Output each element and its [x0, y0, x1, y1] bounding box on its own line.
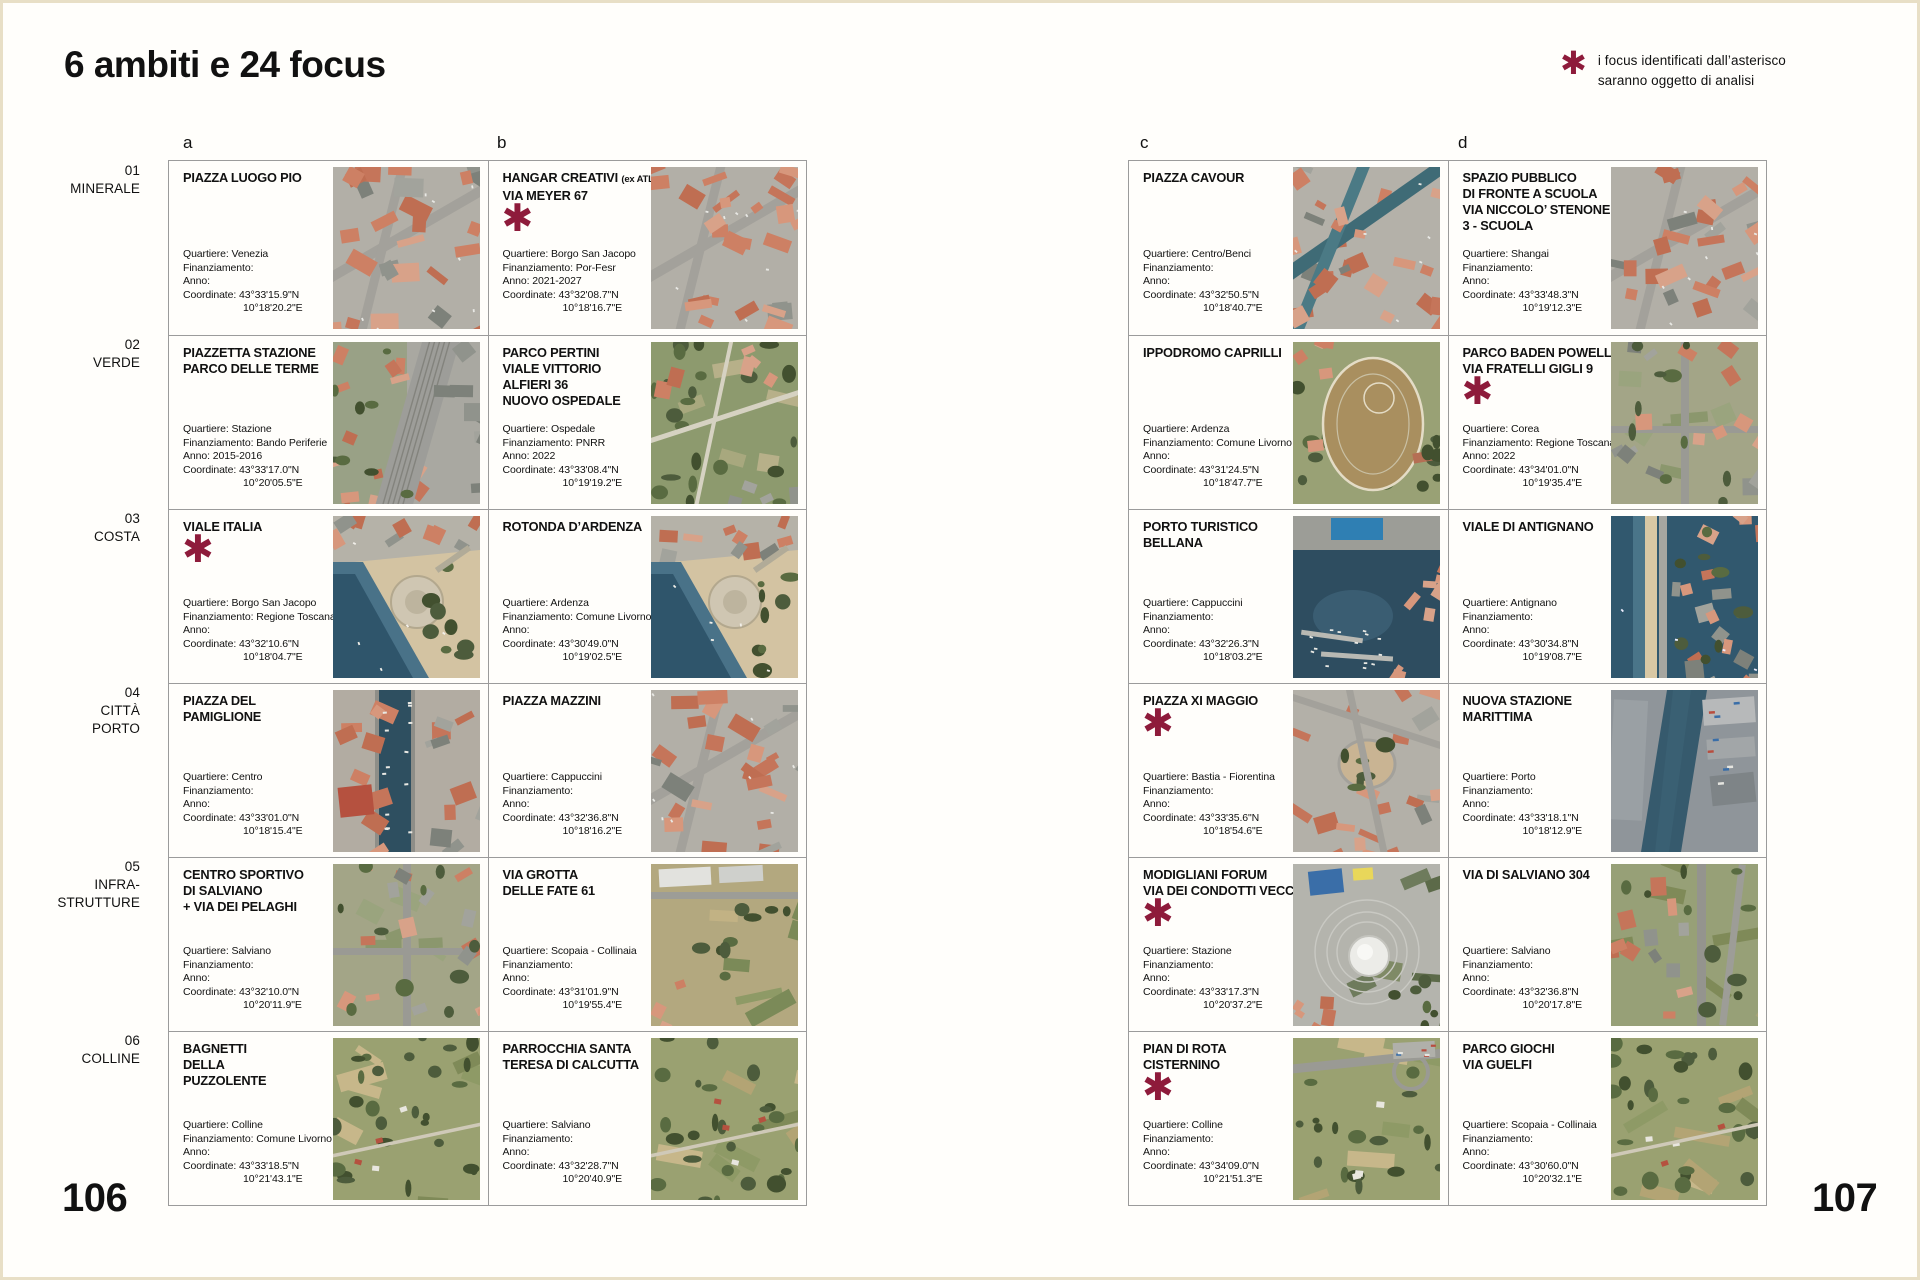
focus-finanziamento: Finanziamento: [1463, 959, 1583, 973]
focus-quartiere: Quartiere: Centro/Benci [1143, 248, 1263, 262]
focus-details: Quartiere: Centro/BenciFinanziamento: An… [1143, 248, 1263, 316]
focus-quartiere: Quartiere: Centro [183, 771, 303, 785]
page-title: 6 ambiti e 24 focus [64, 44, 386, 86]
focus-card-5c: MODIGLIANI FORUMVIA DEI CONDOTTI VECCHI✱… [1129, 857, 1448, 1031]
focus-coordinate-n: Coordinate: 43°33'17.3"N [1143, 986, 1263, 1000]
focus-anno: Anno: [183, 972, 302, 986]
focus-quartiere: Quartiere: Antignano [1463, 597, 1583, 611]
focus-finanziamento: Finanziamento: [1143, 785, 1275, 799]
aerial-photo [1293, 690, 1440, 852]
focus-quartiere: Quartiere: Colline [1143, 1119, 1263, 1133]
focus-card-1a: PIAZZA LUOGO PIOQuartiere: VeneziaFinanz… [169, 161, 488, 335]
aerial-photo [333, 516, 480, 678]
focus-anno: Anno: [1463, 275, 1583, 289]
focus-anno: Anno: [1143, 450, 1292, 464]
focus-coordinate-e: 10°20'17.8"E [1463, 999, 1583, 1013]
focus-coordinate-n: Coordinate: 43°32'50.5"N [1143, 289, 1263, 303]
focus-details: Quartiere: ArdenzaFinanziamento: Comune … [503, 597, 652, 665]
focus-coordinate-n: Coordinate: 43°33'18.5"N [183, 1160, 332, 1174]
focus-coordinate-e: 10°18'16.7"E [503, 302, 636, 316]
focus-anno: Anno: 2022 [503, 450, 623, 464]
focus-quartiere: Quartiere: Bastia - Fiorentina [1143, 771, 1275, 785]
focus-finanziamento: Finanziamento: [1143, 262, 1263, 276]
focus-finanziamento: Finanziamento: [1143, 1133, 1263, 1147]
focus-anno: Anno: [183, 1146, 332, 1160]
focus-quartiere: Quartiere: Cappuccini [503, 771, 623, 785]
focus-coordinate-e: 10°19'55.4"E [503, 999, 637, 1013]
asterisk-icon: ✱ [1560, 48, 1587, 91]
focus-card-6d: PARCO GIOCHIVIA GUELFIQuartiere: Scopaia… [1448, 1031, 1767, 1205]
focus-quartiere: Quartiere: Stazione [183, 423, 327, 437]
focus-details: Quartiere: ArdenzaFinanziamento: Comune … [1143, 423, 1292, 491]
column-letter-a: a [183, 133, 192, 153]
aerial-photo [651, 516, 798, 678]
focus-finanziamento: Finanziamento: [1463, 1133, 1597, 1147]
focus-card-4c: PIAZZA XI MAGGIO✱Quartiere: Bastia - Fio… [1129, 683, 1448, 857]
ambito-label-06: 06COLLINE [0, 1032, 140, 1068]
focus-card-1b: HANGAR CREATIVI (ex ATL)VIA MEYER 67✱Qua… [488, 161, 807, 335]
ambito-name: COLLINE [0, 1050, 140, 1068]
focus-anno: Anno: 2022 [1463, 450, 1616, 464]
focus-quartiere: Quartiere: Borgo San Jacopo [183, 597, 336, 611]
focus-finanziamento: Finanziamento: [1463, 262, 1583, 276]
focus-quartiere: Quartiere: Salviano [503, 1119, 623, 1133]
focus-coordinate-e: 10°18'47.7"E [1143, 477, 1292, 491]
aerial-photo [333, 1038, 480, 1200]
focus-card-4d: NUOVA STAZIONEMARITTIMAQuartiere: PortoF… [1448, 683, 1767, 857]
aerial-photo [651, 342, 798, 504]
aerial-photo [1611, 342, 1758, 504]
focus-coordinate-e: 10°21'51.3"E [1143, 1173, 1263, 1187]
focus-anno: Anno: [183, 798, 303, 812]
legend-line-1: i focus identificati dall’asterisco [1598, 51, 1786, 71]
ambito-name: MINERALE [0, 180, 140, 198]
focus-grid-left-page: PIAZZA LUOGO PIOQuartiere: VeneziaFinanz… [168, 160, 807, 1206]
focus-anno: Anno: [503, 972, 637, 986]
focus-coordinate-n: Coordinate: 43°31'24.5"N [1143, 464, 1292, 478]
page-number-right: 107 [1812, 1176, 1877, 1221]
focus-anno: Anno: 2015-2016 [183, 450, 327, 464]
ambito-number: 02 [0, 336, 140, 354]
ambito-name: VERDE [0, 354, 140, 372]
focus-details: Quartiere: SalvianoFinanziamento: Anno: … [503, 1119, 623, 1187]
focus-coordinate-n: Coordinate: 43°32'36.8"N [1463, 986, 1583, 1000]
focus-finanziamento: Finanziamento: [503, 785, 623, 799]
ambito-number: 01 [0, 162, 140, 180]
focus-anno: Anno: [183, 624, 336, 638]
focus-details: Quartiere: Bastia - FiorentinaFinanziame… [1143, 771, 1275, 839]
focus-coordinate-e: 10°18'40.7"E [1143, 302, 1263, 316]
aerial-photo [651, 690, 798, 852]
focus-details: Quartiere: CollineFinanziamento: Anno: C… [1143, 1119, 1263, 1187]
focus-card-2d: PARCO BADEN POWELLVIA FRATELLI GIGLI 9✱Q… [1448, 335, 1767, 509]
focus-details: Quartiere: Scopaia - CollinaiaFinanziame… [503, 945, 637, 1013]
page-number-left: 106 [62, 1176, 127, 1221]
focus-card-5a: CENTRO SPORTIVODI SALVIANO+ VIA DEI PELA… [169, 857, 488, 1031]
focus-coordinate-n: Coordinate: 43°34'09.0"N [1143, 1160, 1263, 1174]
ambito-name: INFRA- [0, 876, 140, 894]
focus-finanziamento: Finanziamento: Regione Toscana [1463, 437, 1616, 451]
focus-coordinate-n: Coordinate: 43°33'18.1"N [1463, 812, 1583, 826]
focus-coordinate-n: Coordinate: 43°32'08.7"N [503, 289, 636, 303]
column-letter-b: b [497, 133, 506, 153]
focus-anno: Anno: [183, 275, 303, 289]
focus-finanziamento: Finanziamento: Comune Livorno [503, 611, 652, 625]
focus-details: Quartiere: SalvianoFinanziamento: Anno: … [183, 945, 302, 1013]
column-letter-c: c [1140, 133, 1149, 153]
focus-quartiere: Quartiere: Stazione [1143, 945, 1263, 959]
focus-details: Quartiere: CappucciniFinanziamento: Anno… [503, 771, 623, 839]
focus-coordinate-n: Coordinate: 43°33'15.9"N [183, 289, 303, 303]
focus-coordinate-e: 10°18'20.2"E [183, 302, 303, 316]
focus-details: Quartiere: Borgo San JacopoFinanziamento… [183, 597, 336, 665]
aerial-photo [1293, 516, 1440, 678]
focus-card-6b: PARROCCHIA SANTATERESA DI CALCUTTAQuarti… [488, 1031, 807, 1205]
column-letter-d: d [1458, 133, 1467, 153]
focus-anno: Anno: [1463, 972, 1583, 986]
focus-coordinate-e: 10°19'12.3"E [1463, 302, 1583, 316]
focus-card-2a: PIAZZETTA STAZIONEPARCO DELLE TERMEQuart… [169, 335, 488, 509]
focus-details: Quartiere: Borgo San JacopoFinanziamento… [503, 248, 636, 316]
focus-quartiere: Quartiere: Porto [1463, 771, 1583, 785]
focus-coordinate-n: Coordinate: 43°32'10.6"N [183, 638, 336, 652]
focus-coordinate-n: Coordinate: 43°32'26.3"N [1143, 638, 1263, 652]
focus-finanziamento: Finanziamento: Comune Livorno [183, 1133, 332, 1147]
focus-coordinate-e: 10°19'08.7"E [1463, 651, 1583, 665]
focus-finanziamento: Finanziamento: [1143, 611, 1263, 625]
focus-coordinate-e: 10°20'40.9"E [503, 1173, 623, 1187]
legend: ✱ i focus identificati dall’asterisco sa… [1560, 48, 1786, 91]
focus-finanziamento: Finanziamento: [1463, 611, 1583, 625]
focus-quartiere: Quartiere: Scopaia - Collinaia [1463, 1119, 1597, 1133]
focus-coordinate-e: 10°20'32.1"E [1463, 1173, 1597, 1187]
focus-finanziamento: Finanziamento: [503, 1133, 623, 1147]
focus-coordinate-n: Coordinate: 43°34'01.0"N [1463, 464, 1616, 478]
focus-anno: Anno: [503, 624, 652, 638]
ambito-name: STRUTTURE [0, 894, 140, 912]
focus-details: Quartiere: SalvianoFinanziamento: Anno: … [1463, 945, 1583, 1013]
focus-details: Quartiere: VeneziaFinanziamento: Anno: C… [183, 248, 303, 316]
focus-anno: Anno: [1463, 798, 1583, 812]
focus-finanziamento: Finanziamento: PNRR [503, 437, 623, 451]
focus-coordinate-n: Coordinate: 43°33'08.4"N [503, 464, 623, 478]
focus-coordinate-n: Coordinate: 43°32'36.8"N [503, 812, 623, 826]
focus-finanziamento: Finanziamento: [1143, 959, 1263, 973]
aerial-photo [1293, 864, 1440, 1026]
focus-quartiere: Quartiere: Cappuccini [1143, 597, 1263, 611]
aerial-photo [1293, 167, 1440, 329]
focus-coordinate-e: 10°18'12.9"E [1463, 825, 1583, 839]
focus-finanziamento: Finanziamento: Regione Toscana [183, 611, 336, 625]
focus-finanziamento: Finanziamento: Por-Fesr [503, 262, 636, 276]
focus-card-3d: VIALE DI ANTIGNANOQuartiere: AntignanoFi… [1448, 509, 1767, 683]
focus-card-2c: IPPODROMO CAPRILLIQuartiere: ArdenzaFina… [1129, 335, 1448, 509]
ambito-number: 05 [0, 858, 140, 876]
focus-anno: Anno: [1143, 624, 1263, 638]
focus-quartiere: Quartiere: Borgo San Jacopo [503, 248, 636, 262]
focus-quartiere: Quartiere: Salviano [1463, 945, 1583, 959]
focus-details: Quartiere: AntignanoFinanziamento: Anno:… [1463, 597, 1583, 665]
focus-coordinate-n: Coordinate: 43°31'01.9"N [503, 986, 637, 1000]
focus-card-2b: PARCO PERTINIVIALE VITTORIOALFIERI 36NUO… [488, 335, 807, 509]
focus-card-3a: VIALE ITALIA✱Quartiere: Borgo San Jacopo… [169, 509, 488, 683]
focus-details: Quartiere: CentroFinanziamento: Anno: Co… [183, 771, 303, 839]
focus-quartiere: Quartiere: Corea [1463, 423, 1616, 437]
focus-quartiere: Quartiere: Venezia [183, 248, 303, 262]
focus-card-5b: VIA GROTTADELLE FATE 61Quartiere: Scopai… [488, 857, 807, 1031]
focus-coordinate-e: 10°18'16.2"E [503, 825, 623, 839]
focus-coordinate-e: 10°18'04.7"E [183, 651, 336, 665]
legend-line-2: saranno oggetto di analisi [1598, 71, 1786, 91]
book-spread-page: { "page": { "title": "6 ambiti e 24 focu… [0, 0, 1920, 1280]
focus-card-4a: PIAZZA DELPAMIGLIONEQuartiere: CentroFin… [169, 683, 488, 857]
ambito-name: COSTA [0, 528, 140, 546]
focus-card-4b: PIAZZA MAZZINIQuartiere: CappucciniFinan… [488, 683, 807, 857]
focus-anno: Anno: [503, 1146, 623, 1160]
aerial-photo [333, 864, 480, 1026]
focus-finanziamento: Finanziamento: Bando Periferie [183, 437, 327, 451]
focus-details: Quartiere: StazioneFinanziamento: Bando … [183, 423, 327, 491]
focus-quartiere: Quartiere: Scopaia - Collinaia [503, 945, 637, 959]
focus-anno: Anno: 2021-2027 [503, 275, 636, 289]
legend-text: i focus identificati dall’asterisco sara… [1598, 48, 1786, 91]
aerial-photo [333, 167, 480, 329]
focus-coordinate-e: 10°21'43.1"E [183, 1173, 332, 1187]
focus-card-3b: ROTONDA D’ARDENZAQuartiere: ArdenzaFinan… [488, 509, 807, 683]
ambito-name: PORTO [0, 720, 140, 738]
ambito-label-01: 01MINERALE [0, 162, 140, 198]
focus-details: Quartiere: Scopaia - CollinaiaFinanziame… [1463, 1119, 1597, 1187]
aerial-photo [1611, 167, 1758, 329]
focus-details: Quartiere: StazioneFinanziamento: Anno: … [1143, 945, 1263, 1013]
focus-quartiere: Quartiere: Shangai [1463, 248, 1583, 262]
aerial-photo [1293, 342, 1440, 504]
aerial-photo [1611, 864, 1758, 1026]
focus-card-6a: BAGNETTIDELLAPUZZOLENTEQuartiere: Collin… [169, 1031, 488, 1205]
aerial-photo [1611, 516, 1758, 678]
focus-coordinate-n: Coordinate: 43°33'01.0"N [183, 812, 303, 826]
focus-coordinate-n: Coordinate: 43°33'48.3"N [1463, 289, 1583, 303]
focus-details: Quartiere: CappucciniFinanziamento: Anno… [1143, 597, 1263, 665]
focus-details: Quartiere: OspedaleFinanziamento: PNRRAn… [503, 423, 623, 491]
focus-details: Quartiere: CollineFinanziamento: Comune … [183, 1119, 332, 1187]
focus-finanziamento: Finanziamento: [183, 959, 302, 973]
focus-quartiere: Quartiere: Ospedale [503, 423, 623, 437]
aerial-photo [651, 864, 798, 1026]
spread: 6 ambiti e 24 focus ✱ i focus identifica… [0, 0, 1920, 1280]
aerial-photo [651, 167, 798, 329]
focus-quartiere: Quartiere: Colline [183, 1119, 332, 1133]
focus-anno: Anno: [1143, 798, 1275, 812]
focus-coordinate-e: 10°20'11.9"E [183, 999, 302, 1013]
focus-anno: Anno: [1143, 972, 1263, 986]
focus-coordinate-e: 10°20'05.5"E [183, 477, 327, 491]
focus-finanziamento: Finanziamento: [183, 262, 303, 276]
focus-card-6c: PIAN DI ROTACISTERNINO✱Quartiere: Collin… [1129, 1031, 1448, 1205]
focus-coordinate-e: 10°19'35.4"E [1463, 477, 1616, 491]
focus-coordinate-n: Coordinate: 43°30'49.0"N [503, 638, 652, 652]
focus-details: Quartiere: CoreaFinanziamento: Regione T… [1463, 423, 1616, 491]
focus-coordinate-e: 10°20'37.2"E [1143, 999, 1263, 1013]
aerial-photo [1611, 1038, 1758, 1200]
focus-card-1d: SPAZIO PUBBLICODI FRONTE A SCUOLAVIA NIC… [1448, 161, 1767, 335]
focus-finanziamento: Finanziamento: [1463, 785, 1583, 799]
ambito-label-03: 03COSTA [0, 510, 140, 546]
focus-anno: Anno: [1463, 1146, 1597, 1160]
focus-card-5d: VIA DI SALVIANO 304Quartiere: SalvianoFi… [1448, 857, 1767, 1031]
focus-coordinate-n: Coordinate: 43°32'10.0"N [183, 986, 302, 1000]
aerial-photo [333, 342, 480, 504]
ambito-name: CITTÀ [0, 702, 140, 720]
focus-quartiere: Quartiere: Salviano [183, 945, 302, 959]
focus-anno: Anno: [503, 798, 623, 812]
ambito-number: 03 [0, 510, 140, 528]
focus-quartiere: Quartiere: Ardenza [1143, 423, 1292, 437]
focus-anno: Anno: [1143, 275, 1263, 289]
focus-card-3c: PORTO TURISTICOBELLANAQuartiere: Cappucc… [1129, 509, 1448, 683]
focus-coordinate-n: Coordinate: 43°32'28.7"N [503, 1160, 623, 1174]
focus-anno: Anno: [1463, 624, 1583, 638]
focus-card-1c: PIAZZA CAVOURQuartiere: Centro/BenciFina… [1129, 161, 1448, 335]
aerial-photo [1293, 1038, 1440, 1200]
focus-finanziamento: Finanziamento: Comune Livorno [1143, 437, 1292, 451]
focus-finanziamento: Finanziamento: [503, 959, 637, 973]
ambito-label-05: 05INFRA-STRUTTURE [0, 858, 140, 912]
focus-coordinate-n: Coordinate: 43°30'60.0"N [1463, 1160, 1597, 1174]
focus-coordinate-e: 10°19'02.5"E [503, 651, 652, 665]
ambito-number: 04 [0, 684, 140, 702]
focus-coordinate-e: 10°18'15.4"E [183, 825, 303, 839]
aerial-photo [651, 1038, 798, 1200]
focus-grid-right-page: PIAZZA CAVOURQuartiere: Centro/BenciFina… [1128, 160, 1767, 1206]
focus-finanziamento: Finanziamento: [183, 785, 303, 799]
focus-coordinate-n: Coordinate: 43°33'35.6"N [1143, 812, 1275, 826]
focus-coordinate-n: Coordinate: 43°33'17.0"N [183, 464, 327, 478]
focus-coordinate-e: 10°18'54.6"E [1143, 825, 1275, 839]
focus-coordinate-e: 10°19'19.2"E [503, 477, 623, 491]
aerial-photo [333, 690, 480, 852]
focus-coordinate-n: Coordinate: 43°30'34.8"N [1463, 638, 1583, 652]
focus-coordinate-e: 10°18'03.2"E [1143, 651, 1263, 665]
aerial-photo [1611, 690, 1758, 852]
focus-quartiere: Quartiere: Ardenza [503, 597, 652, 611]
focus-anno: Anno: [1143, 1146, 1263, 1160]
focus-details: Quartiere: ShangaiFinanziamento: Anno: C… [1463, 248, 1583, 316]
ambito-label-04: 04CITTÀPORTO [0, 684, 140, 738]
ambito-label-02: 02VERDE [0, 336, 140, 372]
focus-details: Quartiere: PortoFinanziamento: Anno: Coo… [1463, 771, 1583, 839]
ambito-number: 06 [0, 1032, 140, 1050]
